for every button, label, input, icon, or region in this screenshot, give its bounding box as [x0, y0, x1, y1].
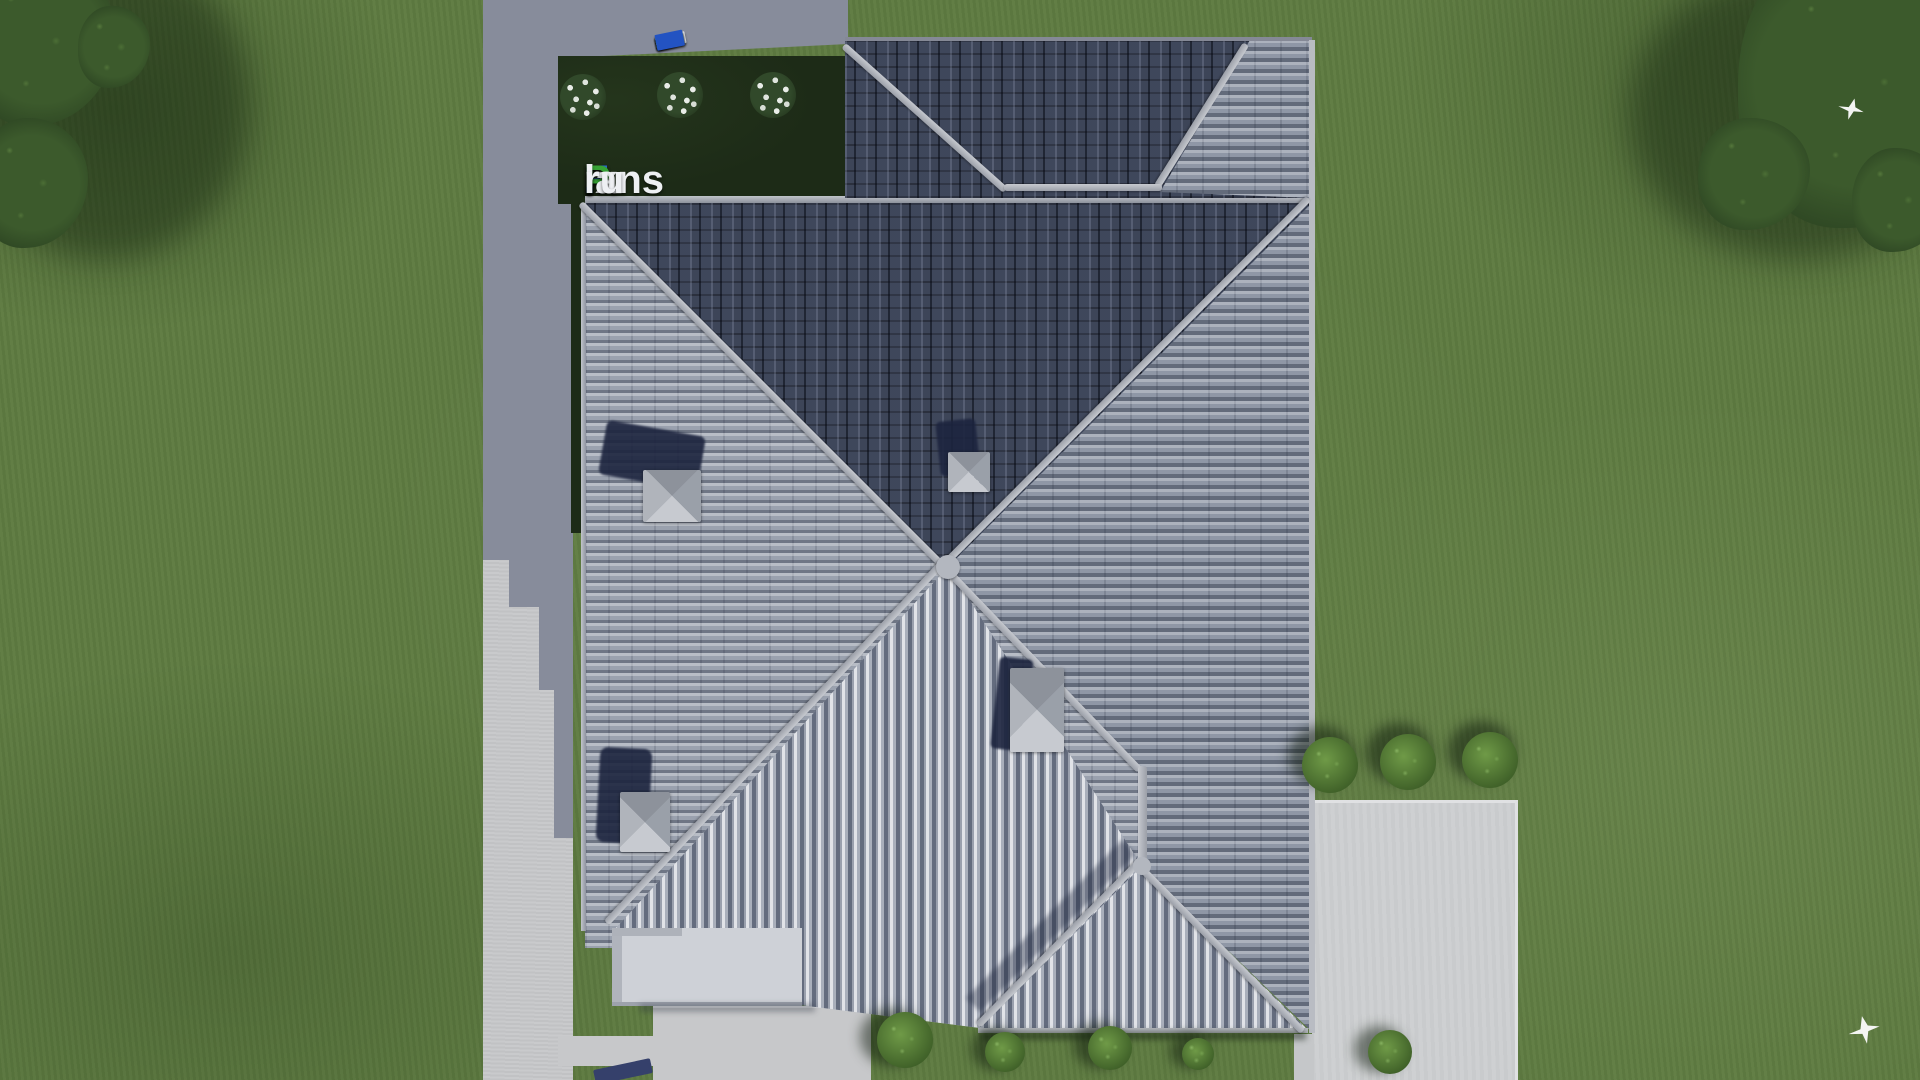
porch-fascia-top [612, 928, 682, 936]
logo-tld: ru [584, 160, 624, 200]
bush [877, 1012, 933, 1068]
flower-bush [560, 74, 606, 120]
bush [1302, 737, 1358, 793]
porch-fascia [612, 928, 622, 1006]
ridge-junction-cap [936, 555, 960, 579]
ridge-vertical [1138, 766, 1147, 870]
bush [1380, 734, 1436, 790]
bush [1088, 1026, 1132, 1070]
garage-rear-fascia [845, 37, 1312, 41]
bush [985, 1032, 1025, 1072]
right-patio [1312, 800, 1518, 1080]
roof-vent-4 [620, 792, 670, 852]
ridge-junction-cap [1133, 857, 1151, 875]
left-eave-fascia [581, 203, 586, 931]
flower-bush [750, 72, 796, 118]
flower-bush [657, 72, 703, 118]
roof-garage-wing [845, 40, 1312, 198]
bush [1182, 1038, 1214, 1070]
porch-eave-shadow [640, 1004, 815, 1012]
roof-vent-3 [1010, 668, 1064, 752]
patio-step [1294, 1034, 1314, 1080]
ridge-garage-main [1004, 184, 1162, 191]
bird-icon [1845, 1012, 1883, 1047]
porch-roof [612, 928, 802, 1006]
roof-vent-2 [948, 452, 990, 492]
front-concrete-pad [653, 1006, 871, 1080]
bush [1368, 1030, 1412, 1074]
right-eave-fascia [1309, 40, 1315, 1033]
wing-eave-shadow [980, 1031, 1306, 1040]
roof-vent-1 [643, 470, 701, 522]
bush [1462, 732, 1518, 788]
aerial-render-scene: FixPlans.ru [0, 0, 1920, 1080]
